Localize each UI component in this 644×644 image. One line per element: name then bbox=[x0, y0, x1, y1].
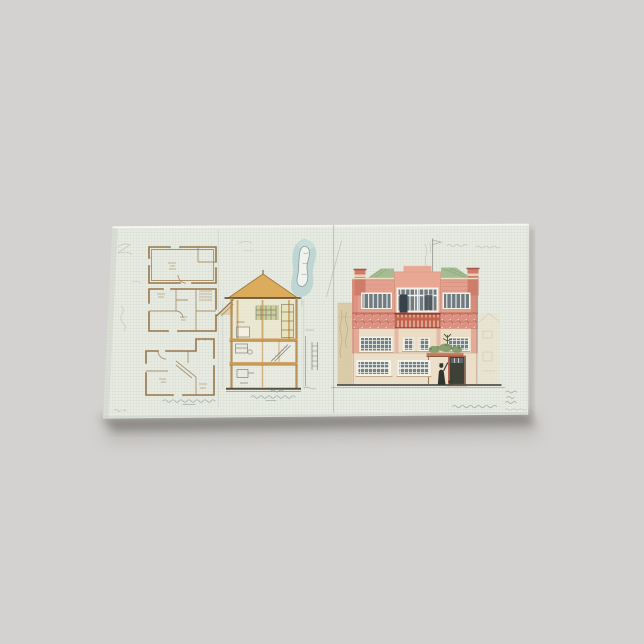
section-floor-band bbox=[230, 339, 298, 342]
canvas-right-inner-edge bbox=[527, 225, 528, 415]
neighbor-building-right bbox=[479, 313, 500, 385]
neighbor-building-left bbox=[338, 303, 353, 385]
section-floor-band bbox=[230, 362, 298, 365]
balcony bbox=[395, 314, 441, 329]
chimney-right bbox=[467, 269, 480, 296]
dark-balcony-door bbox=[400, 295, 408, 313]
product-scene bbox=[0, 0, 644, 644]
canvas-print[interactable] bbox=[103, 224, 529, 419]
chimney-left bbox=[354, 270, 367, 296]
